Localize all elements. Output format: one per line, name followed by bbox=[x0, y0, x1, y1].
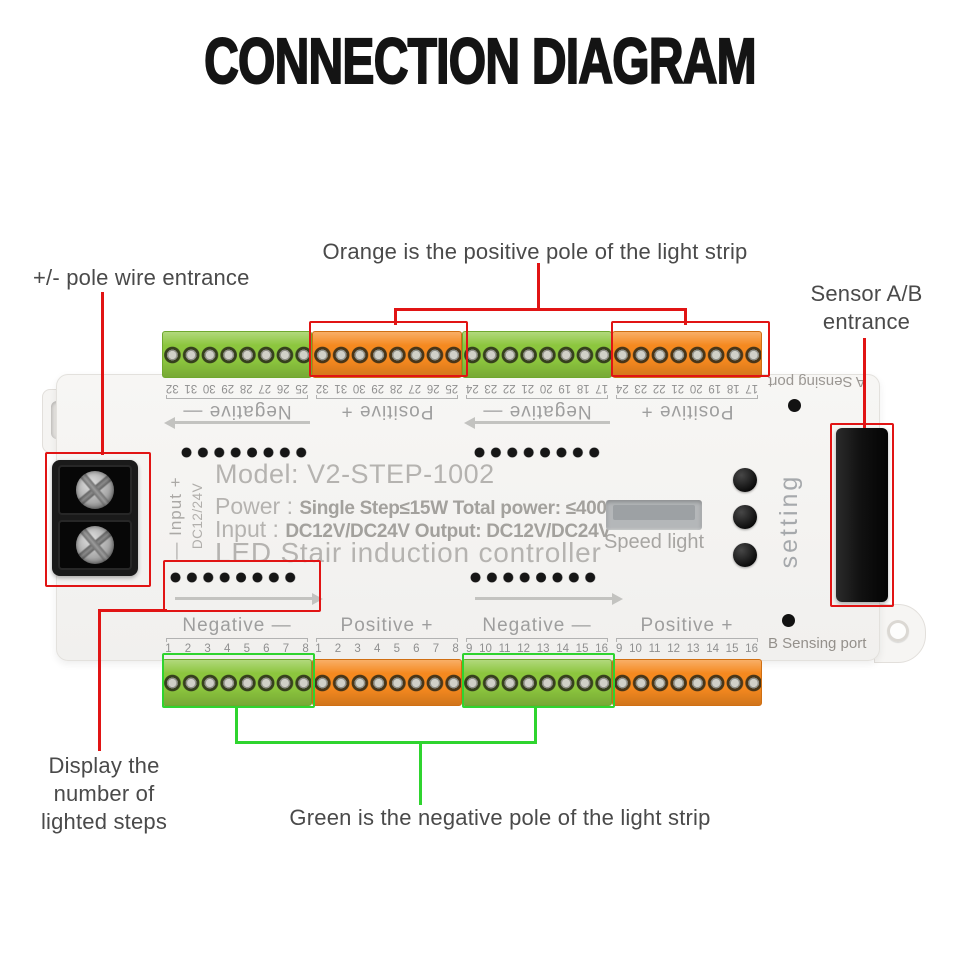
connection-diagram: CONNECTION DIAGRAM +/- pole wire entranc… bbox=[0, 0, 960, 960]
callout-line-green-stem bbox=[419, 741, 422, 805]
highlight-box-negative-bottom-2 bbox=[462, 653, 615, 708]
green-callouts bbox=[0, 0, 960, 960]
callout-line-green-drop-left bbox=[235, 708, 238, 742]
highlight-box-negative-bottom-1 bbox=[162, 653, 315, 708]
callout-line-green-horizontal bbox=[235, 741, 537, 744]
callout-line-green-drop-right bbox=[534, 708, 537, 742]
